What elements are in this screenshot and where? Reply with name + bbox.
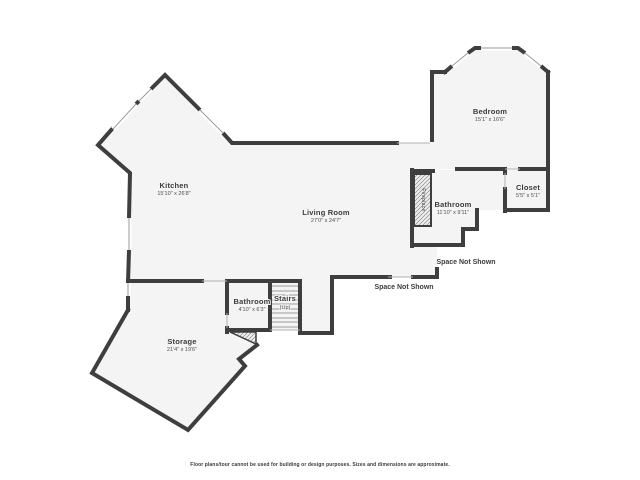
- space-not-shown-bottom: Space Not Shown: [374, 284, 433, 291]
- room-dims-storage: 21'4" x 19'6": [167, 347, 197, 353]
- room-label-bedroom: Bedroom: [473, 107, 507, 116]
- floor-plan-svg: Fireplace Kitchen 15'10" x 26'8" Living …: [0, 0, 640, 480]
- fireplace: Fireplace: [414, 174, 431, 226]
- room-label-living-room: Living Room: [302, 208, 350, 217]
- room-label-storage: Storage: [167, 337, 196, 346]
- disclaimer-text: Floor plans/tour cannot be used for buil…: [190, 462, 450, 468]
- room-dims-living-room: 27'0" x 24'7": [311, 218, 341, 224]
- room-dims-kitchen: 15'10" x 26'8": [157, 191, 190, 197]
- room-label-stairs: Stairs: [274, 294, 296, 303]
- floor-areas: [92, 48, 548, 430]
- room-label-kitchen: Kitchen: [160, 181, 189, 190]
- floor-bath-closet-block: [412, 170, 548, 245]
- room-label-bathroom-lower: Bathroom: [233, 297, 270, 306]
- room-dims-stairs: (Up): [280, 305, 291, 311]
- room-label-bathroom-main: Bathroom: [434, 200, 471, 209]
- floor-plan-page: Fireplace Kitchen 15'10" x 26'8" Living …: [0, 0, 640, 480]
- fireplace-label: Fireplace: [420, 188, 426, 211]
- space-not-shown-right: Space Not Shown: [436, 259, 495, 266]
- room-label-closet: Closet: [516, 183, 540, 192]
- room-dims-bedroom: 15'1" x 16'6": [475, 117, 505, 123]
- room-dims-closet: 5'5" x 5'1": [516, 193, 540, 199]
- room-dims-bathroom-lower: 4'10" x 6'3": [238, 307, 265, 313]
- room-dims-bathroom-main: 11'10" x 9'11": [437, 210, 469, 216]
